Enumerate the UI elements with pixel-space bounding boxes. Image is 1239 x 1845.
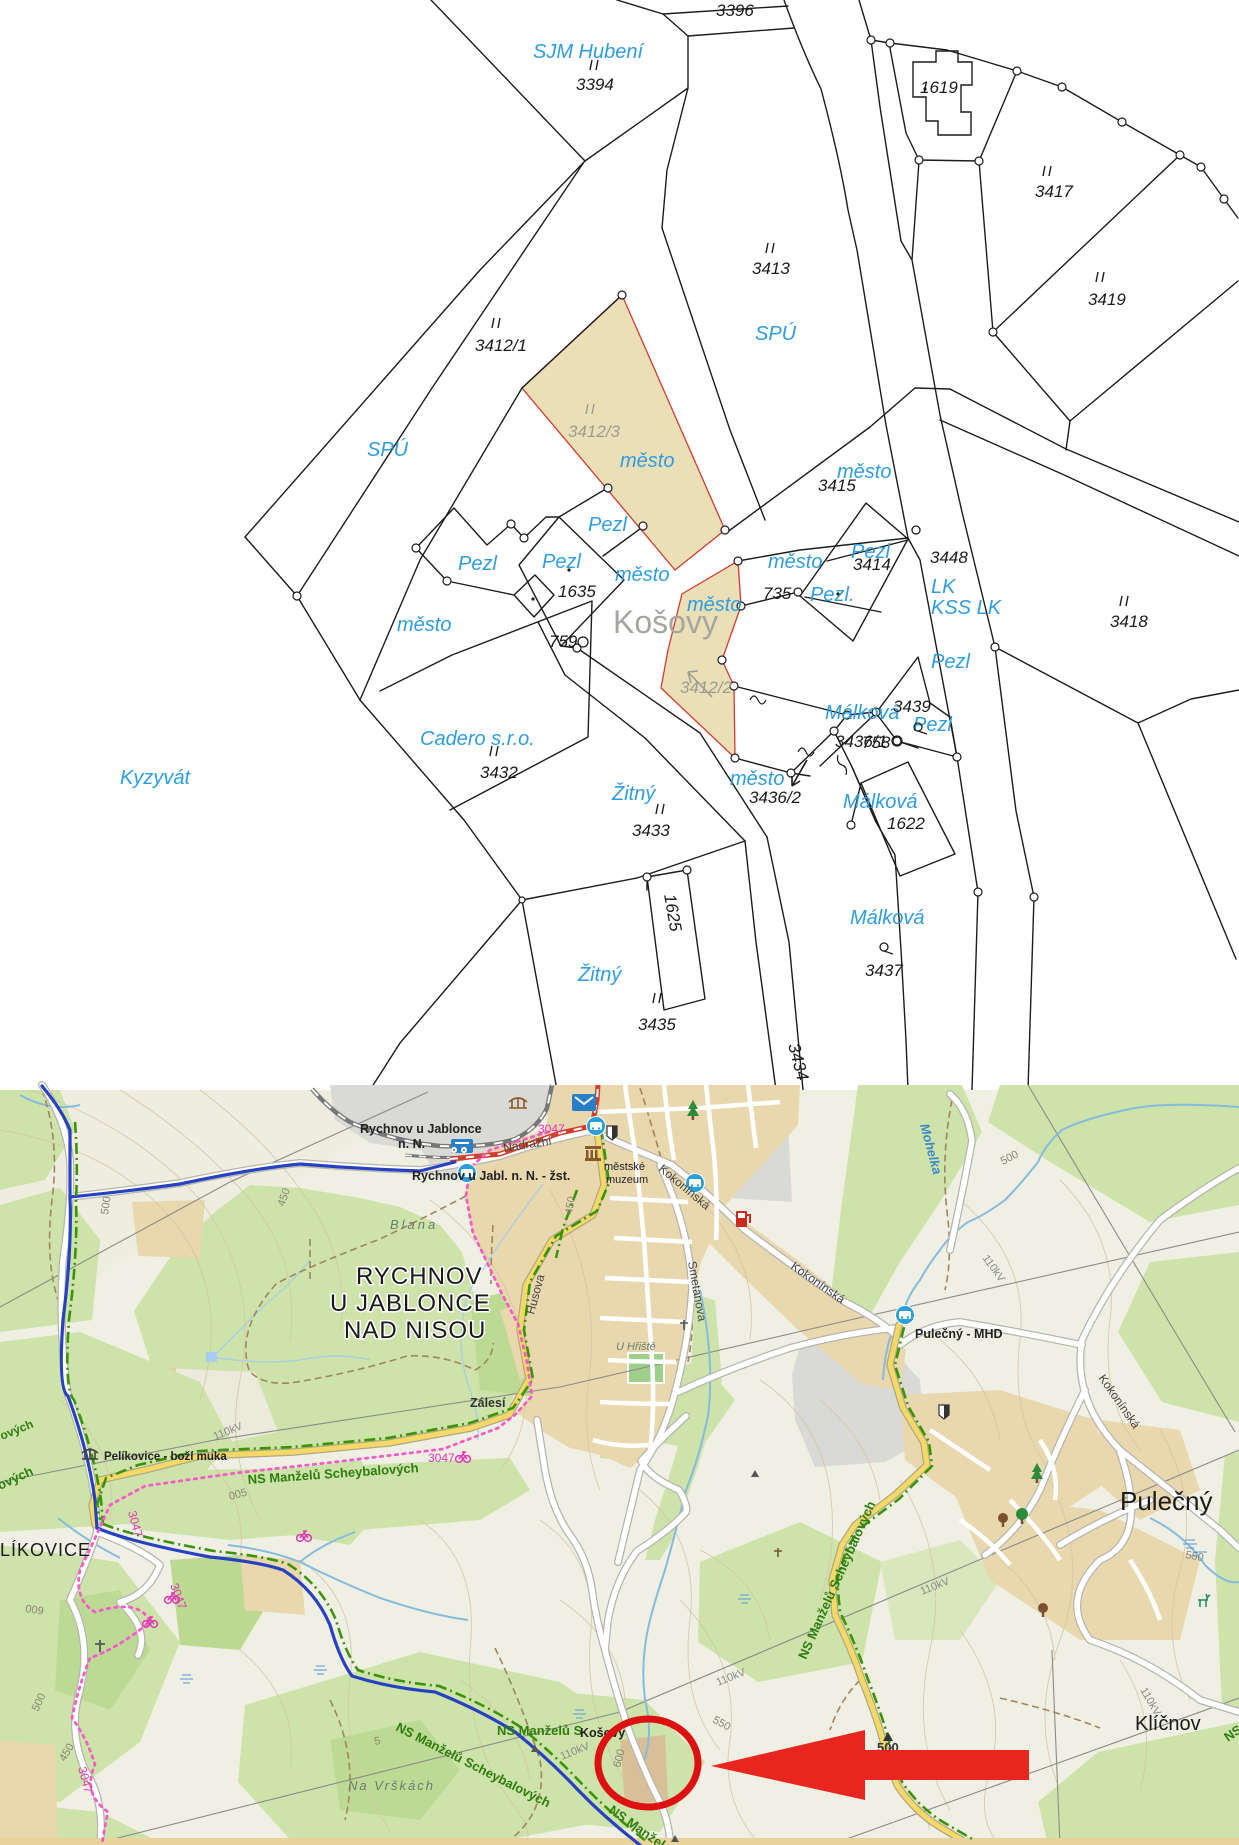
svg-text:U Hřiště: U Hřiště <box>616 1341 656 1353</box>
svg-text:Pezl: Pezl <box>913 714 952 736</box>
svg-text:3412/2: 3412/2 <box>680 678 733 697</box>
svg-text:Pezl: Pezl <box>458 553 497 575</box>
svg-text:Málková: Málková <box>843 791 917 813</box>
svg-text:3432: 3432 <box>480 763 518 782</box>
svg-text:Málková: Málková <box>850 907 924 929</box>
svg-text:Žitný: Žitný <box>577 963 622 986</box>
svg-text:3436/1: 3436/1 <box>835 732 887 751</box>
svg-text:Kyzyvát: Kyzyvát <box>120 767 191 789</box>
svg-text:město: město <box>620 450 674 472</box>
svg-text:Pezl: Pezl <box>542 551 581 573</box>
svg-text:Žitný: Žitný <box>611 782 656 805</box>
svg-text:Pezl: Pezl <box>588 514 627 536</box>
svg-text:městské: městské <box>604 1161 645 1173</box>
svg-text:LK: LK <box>931 576 957 598</box>
svg-text:Rychnov u Jabl. n. N. - žst.: Rychnov u Jabl. n. N. - žst. <box>412 1169 570 1183</box>
svg-text:735: 735 <box>763 584 792 603</box>
svg-text:Pezl: Pezl <box>931 651 970 673</box>
svg-text:město: město <box>730 768 784 790</box>
svg-text:3448: 3448 <box>930 548 968 567</box>
svg-text:Pulečný - MHD: Pulečný - MHD <box>915 1327 1003 1341</box>
svg-text:SPÚ: SPÚ <box>755 322 797 345</box>
svg-text:3413: 3413 <box>752 259 790 278</box>
svg-text:U JABLONCE: U JABLONCE <box>330 1290 491 1317</box>
svg-text:3437: 3437 <box>865 961 903 980</box>
svg-text:město: město <box>615 564 669 586</box>
svg-text:3396: 3396 <box>716 1 754 20</box>
svg-text:3412/3: 3412/3 <box>568 422 621 441</box>
svg-text:NAD NISOU: NAD NISOU <box>344 1317 486 1344</box>
svg-text:RYCHNOV: RYCHNOV <box>356 1263 483 1290</box>
svg-text:3394: 3394 <box>576 75 614 94</box>
svg-text:3415: 3415 <box>818 476 856 495</box>
svg-text:3412/1: 3412/1 <box>475 336 527 355</box>
svg-text:SPÚ: SPÚ <box>367 438 409 461</box>
svg-text:Zálesí: Zálesí <box>470 1396 506 1410</box>
svg-text:SJM Hubení: SJM Hubení <box>533 41 645 63</box>
svg-text:NS Manželů S: NS Manželů S <box>497 1723 583 1738</box>
svg-text:Málková: Málková <box>825 702 899 724</box>
svg-text:3047: 3047 <box>428 1451 455 1465</box>
svg-text:3433: 3433 <box>632 821 670 840</box>
svg-text:3414: 3414 <box>853 555 891 574</box>
svg-text:Rychnov u Jablonce: Rychnov u Jablonce <box>360 1122 482 1136</box>
svg-text:Pulečný: Pulečný <box>1120 1486 1213 1516</box>
svg-text:3417: 3417 <box>1035 182 1073 201</box>
svg-text:Pelíkovice - boží muka: Pelíkovice - boží muka <box>104 1451 227 1463</box>
svg-text:3436/2: 3436/2 <box>749 788 802 807</box>
svg-text:3418: 3418 <box>1110 612 1148 631</box>
svg-text:3435: 3435 <box>638 1015 676 1034</box>
svg-text:LÍKOVICE: LÍKOVICE <box>0 1540 91 1560</box>
svg-text:Na Vrškách: Na Vrškách <box>348 1778 435 1793</box>
svg-text:1635: 1635 <box>558 582 596 601</box>
svg-text:1622: 1622 <box>887 814 925 833</box>
svg-text:muzeum: muzeum <box>606 1174 648 1186</box>
svg-text:3419: 3419 <box>1088 290 1126 309</box>
svg-text:Cadero s.r.o.: Cadero s.r.o. <box>420 728 535 750</box>
svg-text:Pezl.: Pezl. <box>810 584 854 606</box>
svg-text:město: město <box>397 614 451 636</box>
svg-text:Klíčnov: Klíčnov <box>1135 1713 1201 1735</box>
svg-text:Blana: Blana <box>390 1217 438 1232</box>
svg-text:město: město <box>768 551 822 573</box>
svg-text:3439: 3439 <box>893 697 931 716</box>
svg-text:n. N.: n. N. <box>398 1137 425 1151</box>
svg-text:500: 500 <box>99 1196 113 1216</box>
svg-text:Košovy: Košovy <box>613 604 718 640</box>
svg-text:759: 759 <box>549 632 578 651</box>
svg-text:1619: 1619 <box>920 78 958 97</box>
svg-text:KSS LK: KSS LK <box>931 597 1003 619</box>
svg-text:009: 009 <box>25 1603 45 1617</box>
